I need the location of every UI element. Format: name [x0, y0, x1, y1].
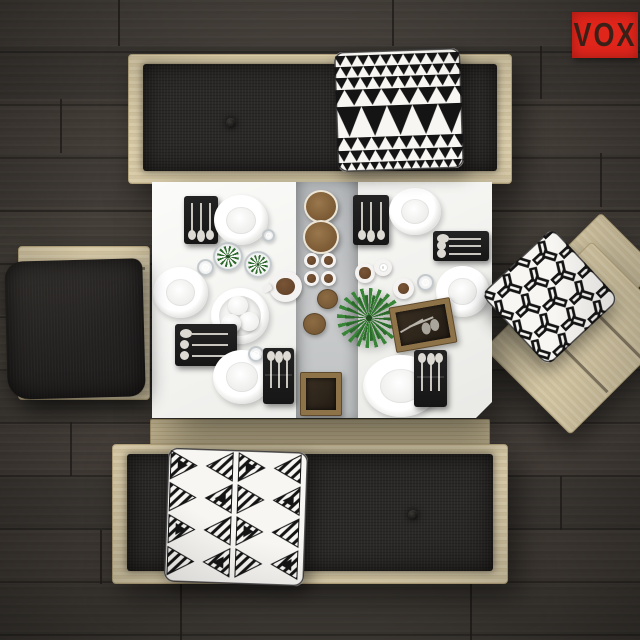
- plate-well: [401, 199, 429, 224]
- utensil-head: [427, 353, 435, 365]
- floor-plank-seam: [100, 530, 102, 584]
- bench-bottom-rail: [150, 419, 490, 445]
- floor-plank-seam: [600, 153, 602, 207]
- pouch-seam: [417, 376, 445, 378]
- utensil-handle: [200, 203, 202, 231]
- utensil-head: [275, 351, 283, 363]
- utensil-head: [437, 249, 446, 258]
- vox-logo-text: VOX: [573, 16, 636, 55]
- coffee: [276, 278, 294, 295]
- tray: [433, 231, 489, 261]
- pillow-tribal-triangles: [164, 448, 309, 587]
- board: [304, 190, 338, 223]
- plate: [153, 267, 208, 318]
- utensil-head: [377, 230, 385, 240]
- floor-plank-seam: [392, 0, 394, 46]
- coffee: [359, 267, 370, 278]
- plate-well: [226, 362, 257, 391]
- mug-handle: [261, 283, 273, 294]
- wood-box: [300, 372, 342, 416]
- utensil-head: [435, 353, 443, 363]
- plate: [389, 188, 441, 235]
- utensil-handle: [449, 245, 481, 247]
- small-cup: [355, 263, 375, 283]
- bun: [317, 289, 338, 309]
- utensil-head: [358, 230, 366, 240]
- succulent-center: [226, 255, 229, 258]
- utensil-head: [267, 351, 275, 361]
- utensil-handle: [361, 202, 363, 231]
- glass: [417, 274, 434, 291]
- utensil-handle: [370, 202, 372, 231]
- white-cup: [374, 259, 392, 276]
- pillow-solid-dark: [4, 258, 146, 400]
- plate: [214, 195, 268, 245]
- utensil-head: [206, 230, 214, 240]
- plate-well: [448, 278, 477, 306]
- coffee-cup: [321, 253, 336, 268]
- succulent: [213, 242, 243, 271]
- floor-plank-seam: [560, 476, 562, 530]
- utensil-head: [180, 351, 189, 360]
- spoon-box: [388, 297, 457, 353]
- lid-knob: [382, 266, 384, 268]
- utensil-handle: [449, 238, 481, 240]
- utensil-head: [180, 329, 192, 338]
- utensil-head: [180, 340, 189, 349]
- vox-logo: VOX: [572, 12, 638, 58]
- utensil-handle: [192, 333, 228, 335]
- utensil-handle: [449, 253, 481, 255]
- bun: [303, 313, 326, 335]
- floor-plank: [0, 584, 640, 640]
- floor-plank-seam: [470, 584, 472, 640]
- coffee: [307, 256, 315, 264]
- tray: [414, 350, 447, 407]
- tray: [263, 348, 294, 404]
- succulent: [244, 251, 272, 278]
- glass-rim: [422, 279, 429, 286]
- dining-table: [152, 182, 492, 418]
- floor-plank-seam: [180, 584, 182, 640]
- board: [303, 220, 339, 254]
- pillow-triangle-pattern: [334, 48, 464, 172]
- mug: [269, 271, 302, 302]
- utensil-head: [197, 230, 205, 242]
- tuft-button: [226, 118, 236, 128]
- coffee: [307, 274, 315, 282]
- tuft-button: [408, 510, 418, 520]
- glass: [248, 346, 264, 362]
- utensil-head: [188, 230, 196, 240]
- utensil-handle: [209, 203, 211, 231]
- utensil-handle: [192, 344, 228, 346]
- plate-well: [226, 207, 255, 234]
- floor-plank-seam: [118, 0, 120, 46]
- glass-rim: [266, 233, 271, 238]
- tray: [184, 196, 218, 244]
- dining-table-wrap: [152, 182, 492, 418]
- coffee-cup: [304, 253, 319, 268]
- scene: VOX: [0, 0, 640, 640]
- floor-plank-seam: [70, 422, 72, 476]
- coffee-cup: [321, 271, 336, 286]
- coffee: [324, 256, 332, 264]
- floor-plank: [0, 0, 640, 46]
- coffee-cup: [304, 271, 319, 286]
- glass: [262, 229, 275, 242]
- glass-rim: [253, 351, 259, 357]
- glass-rim: [202, 264, 209, 271]
- utensil-head: [418, 353, 426, 363]
- utensil-handle: [191, 203, 193, 231]
- box-cavity: [306, 378, 336, 410]
- coffee: [324, 274, 332, 282]
- plate-well: [166, 279, 196, 307]
- floor-plank-seam: [540, 46, 542, 99]
- egg: [239, 312, 259, 331]
- pouch-seam: [265, 374, 291, 376]
- utensil-handle: [380, 202, 382, 231]
- tray: [353, 195, 389, 245]
- utensil-head: [283, 351, 291, 361]
- floor-plank-seam: [60, 99, 62, 153]
- utensil-head: [367, 230, 375, 242]
